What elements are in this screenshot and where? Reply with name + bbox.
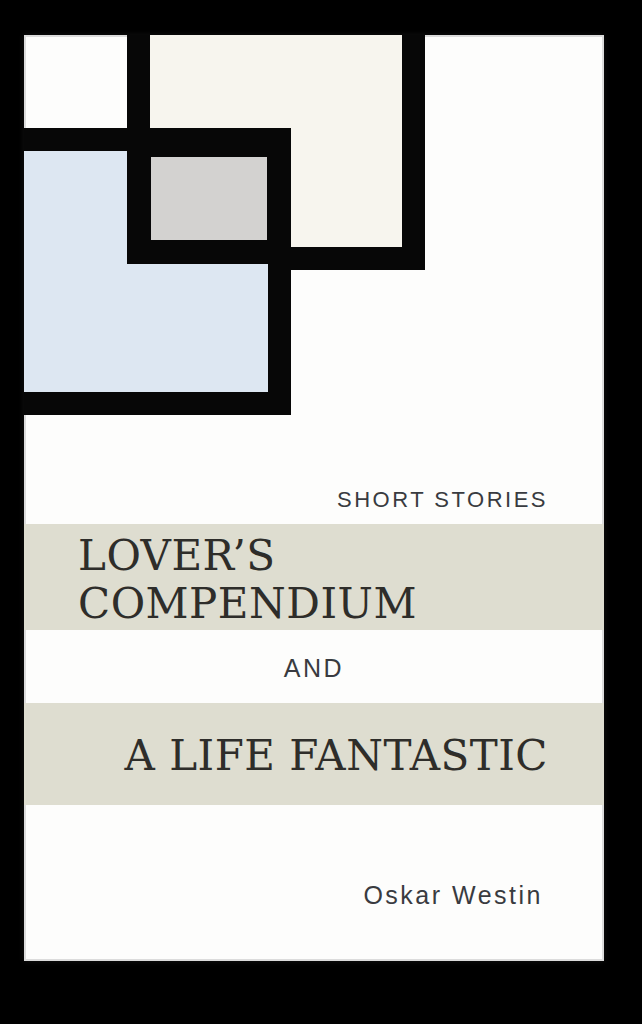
- title-band: LOVER’SCOMPENDIUM: [24, 524, 604, 630]
- second-title: A LIFE FANTASTIC: [24, 732, 548, 780]
- book-cover: SHORT STORIES LOVER’SCOMPENDIUM AND A LI…: [24, 35, 604, 961]
- connector-text: AND: [24, 653, 604, 683]
- subtitle-text: SHORT STORIES: [24, 486, 548, 514]
- author-name: Oskar Westin: [24, 881, 543, 909]
- main-title: LOVER’SCOMPENDIUM: [78, 532, 417, 628]
- art-gray-square-icon: [127, 133, 291, 264]
- main-title-line-1: LOVER’S: [78, 531, 276, 580]
- cover-artwork: [24, 35, 604, 465]
- second-title-band: A LIFE FANTASTIC: [24, 703, 604, 805]
- main-title-line-2: COMPENDIUM: [78, 579, 417, 628]
- page-background: SHORT STORIES LOVER’SCOMPENDIUM AND A LI…: [0, 0, 642, 1024]
